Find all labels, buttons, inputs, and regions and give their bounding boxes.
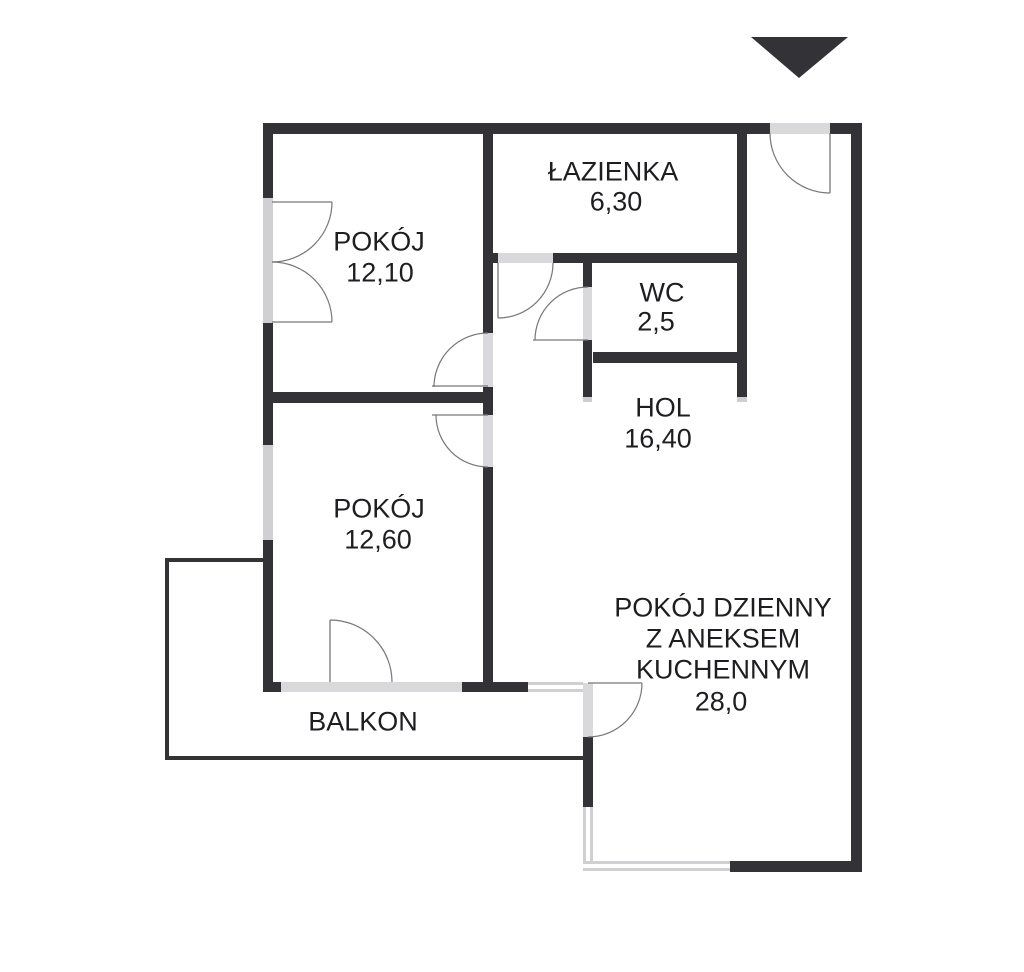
- wall-bathroom-bottom: [553, 253, 747, 263]
- room-area-pokoj-dolny: 12,60: [344, 525, 412, 556]
- wall-right: [851, 123, 862, 872]
- wall-end-cap: [737, 397, 747, 402]
- room-label-hol: HOL: [635, 393, 691, 424]
- room-area-hol: 16,40: [624, 424, 692, 455]
- window-room2: [263, 445, 273, 540]
- room-area-lazienka: 6,30: [590, 187, 643, 218]
- entry-door-arc: [770, 133, 830, 193]
- wall-left-segment: [263, 540, 273, 692]
- window-glass: [583, 864, 730, 868]
- bathroom-door-opening: [498, 253, 553, 263]
- floor-plan-drawing: [0, 0, 1024, 972]
- livingroom-balcony-door-arc: [588, 683, 642, 737]
- wall-bottom: [730, 861, 862, 872]
- wall-end-cap: [583, 397, 592, 402]
- wall-interior-vertical: [483, 467, 493, 683]
- north-arrow-icon: [751, 37, 848, 78]
- french-window-arc: [272, 202, 332, 262]
- room-area-wc: 2,5: [637, 307, 675, 338]
- room-label-balkon: BALKON: [308, 707, 418, 738]
- room-label-wc: WC: [640, 278, 685, 309]
- wall-wc-bottom: [593, 352, 747, 363]
- room-label-lazienka: ŁAZIENKA: [548, 157, 679, 188]
- room2-balcony-door-opening: [281, 682, 462, 692]
- french-window-arc: [272, 262, 332, 322]
- wall-livingroom-left: [583, 737, 593, 807]
- wall-left-segment: [263, 123, 273, 198]
- room-area-pokoj-dzienny: 28,0: [695, 687, 748, 718]
- wall-between-rooms: [272, 392, 493, 403]
- room-label-pokoj-gorny: POKÓJ: [333, 227, 425, 258]
- entry-door-opening: [770, 123, 830, 134]
- room1-door-arc: [434, 333, 488, 387]
- room1-door-opening: [483, 333, 493, 387]
- window-glass: [528, 685, 583, 689]
- room2-door-arc: [436, 415, 488, 467]
- wall-wc-left: [583, 340, 592, 397]
- wall-left-segment: [263, 323, 273, 445]
- wall-bathroom-bottom: [493, 253, 498, 263]
- window-glass: [586, 807, 590, 861]
- room-label-pokoj-dzienny: POKÓJ DZIENNY Z ANEKSEM KUCHENNYM: [614, 593, 832, 686]
- room-area-pokoj-gorny: 12,10: [346, 258, 414, 289]
- wall-interior-vertical: [483, 133, 493, 333]
- room2-balcony-door-arc: [330, 620, 392, 682]
- wall-corridor: [737, 133, 747, 397]
- room2-door-opening: [483, 415, 493, 467]
- livingroom-balcony-door-opening: [583, 683, 593, 737]
- wc-door-opening: [583, 287, 592, 340]
- wall-room2-bottom: [462, 682, 528, 692]
- floor-plan: ŁAZIENKA 6,30 POKÓJ 12,10 WC 2,5 HOL 16,…: [0, 0, 1024, 972]
- wall-wc-left: [583, 263, 592, 287]
- room-label-pokoj-dolny: POKÓJ: [333, 494, 425, 525]
- window-room1: [263, 198, 273, 323]
- wall-room2-bottom: [263, 682, 281, 692]
